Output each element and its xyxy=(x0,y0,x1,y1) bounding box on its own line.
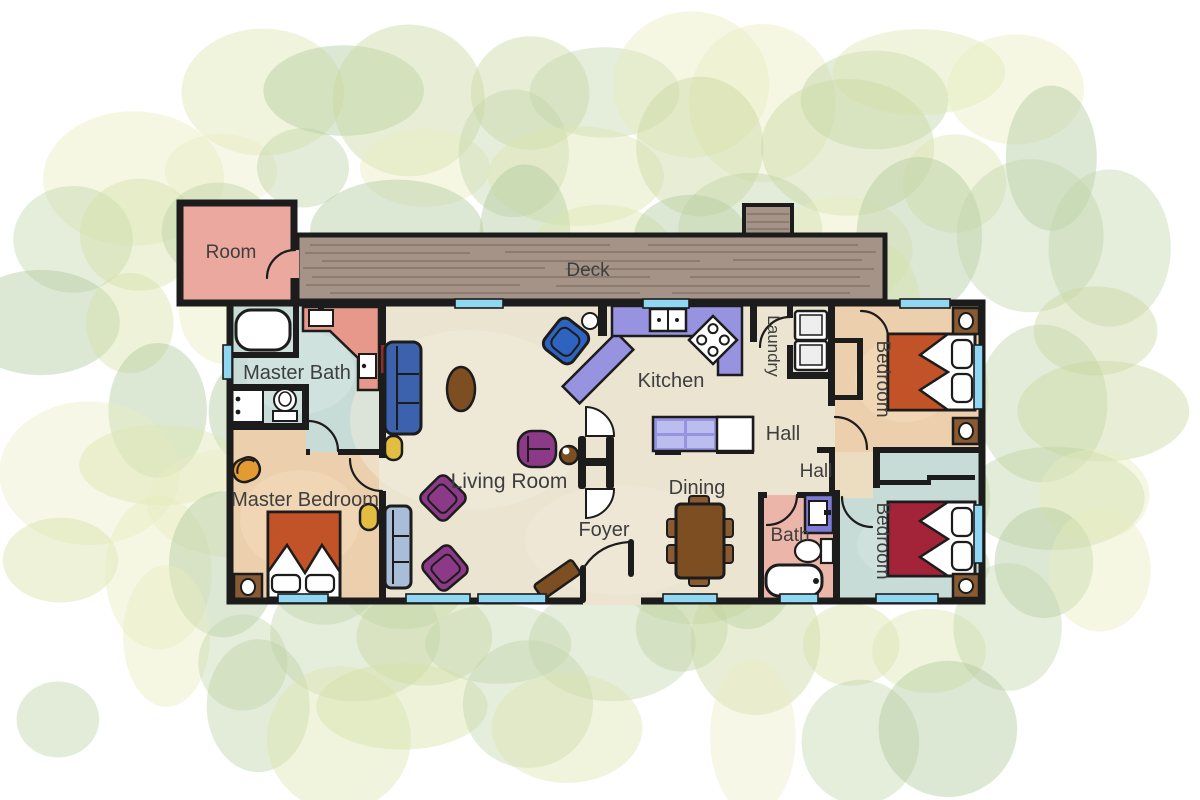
faucet xyxy=(362,364,366,368)
faucet xyxy=(236,410,241,415)
foliage-blob xyxy=(1017,361,1189,462)
hall-label: Hall xyxy=(766,423,800,445)
window xyxy=(663,594,717,603)
window xyxy=(900,299,950,308)
window xyxy=(780,594,818,603)
bedroom-label: Bedroom xyxy=(872,340,893,417)
couch-lightblue xyxy=(385,506,411,588)
window xyxy=(406,594,470,603)
pillow xyxy=(306,575,334,592)
side-table-round xyxy=(560,446,578,464)
foliage-blob xyxy=(17,682,100,758)
tub-faucet xyxy=(813,578,819,584)
dryer-door xyxy=(800,345,822,365)
bath-label: Bath xyxy=(770,525,809,546)
window xyxy=(478,594,546,603)
foliage-blob xyxy=(1049,508,1151,631)
sink xyxy=(359,354,376,378)
closet-wall xyxy=(857,338,863,400)
dining-table xyxy=(676,504,724,578)
island-cabinet xyxy=(657,421,684,433)
island-top xyxy=(717,417,753,451)
bedroom-label: Bedroom xyxy=(872,502,893,579)
hall-label: Hall xyxy=(800,461,833,482)
pillow xyxy=(952,542,972,570)
chair-yellow xyxy=(385,436,402,460)
sliding-door xyxy=(879,480,931,485)
window xyxy=(278,594,328,603)
bathtub xyxy=(236,310,290,350)
corridor-floor xyxy=(835,452,873,498)
tub-nook-wall xyxy=(293,306,299,358)
dining-label: Dining xyxy=(669,477,726,499)
foyer-label: Foyer xyxy=(578,519,629,541)
sofa xyxy=(385,342,421,434)
pillow xyxy=(272,575,300,592)
pillow xyxy=(952,508,972,536)
room-door-gap xyxy=(289,250,299,278)
foliage-blob xyxy=(3,518,118,603)
pillow xyxy=(952,374,972,402)
window xyxy=(643,299,689,308)
front-door-gap xyxy=(583,597,641,605)
side-table-highlight xyxy=(563,448,570,455)
floorplan-svg: Room Deck Master Bath Master Bedroom Liv… xyxy=(0,0,1200,800)
window xyxy=(455,299,503,308)
room-label: Room xyxy=(206,242,257,263)
drain xyxy=(675,318,679,322)
tub-nook-wall xyxy=(233,352,299,358)
lamp xyxy=(241,579,255,595)
sliding-door xyxy=(927,475,975,480)
master-bath-label: Master Bath xyxy=(243,362,351,384)
lamp xyxy=(959,423,973,439)
sink xyxy=(231,390,263,422)
window xyxy=(974,505,983,563)
lamp xyxy=(959,579,973,593)
window xyxy=(974,345,983,409)
faucet xyxy=(824,510,831,515)
island-cabinet xyxy=(657,436,684,448)
foliage-blob xyxy=(879,661,1018,797)
faucet xyxy=(236,397,241,402)
foliage-blob xyxy=(123,565,210,707)
washer-door xyxy=(800,315,822,335)
deck-label: Deck xyxy=(566,260,610,281)
lamp xyxy=(959,313,973,329)
foliage-blob xyxy=(492,673,643,783)
island-cabinet xyxy=(687,436,714,448)
living-room-label: Living Room xyxy=(451,470,568,493)
pillow xyxy=(952,340,972,368)
window xyxy=(223,345,232,379)
laundry-label: Laundry xyxy=(764,315,783,377)
island-cabinet xyxy=(687,421,714,433)
sink xyxy=(309,310,333,326)
floorplan-page: Room Deck Master Bath Master Bedroom Liv… xyxy=(0,0,1200,800)
kitchen-label: Kitchen xyxy=(638,370,705,392)
foliage-blob xyxy=(316,663,487,749)
coffee-table xyxy=(447,367,475,411)
master-bedroom-label: Master Bedroom xyxy=(231,489,379,511)
window xyxy=(876,594,938,603)
side-table xyxy=(582,313,598,329)
toilet-tank xyxy=(821,539,833,563)
drain xyxy=(657,318,661,322)
toilet-tank xyxy=(273,411,297,421)
